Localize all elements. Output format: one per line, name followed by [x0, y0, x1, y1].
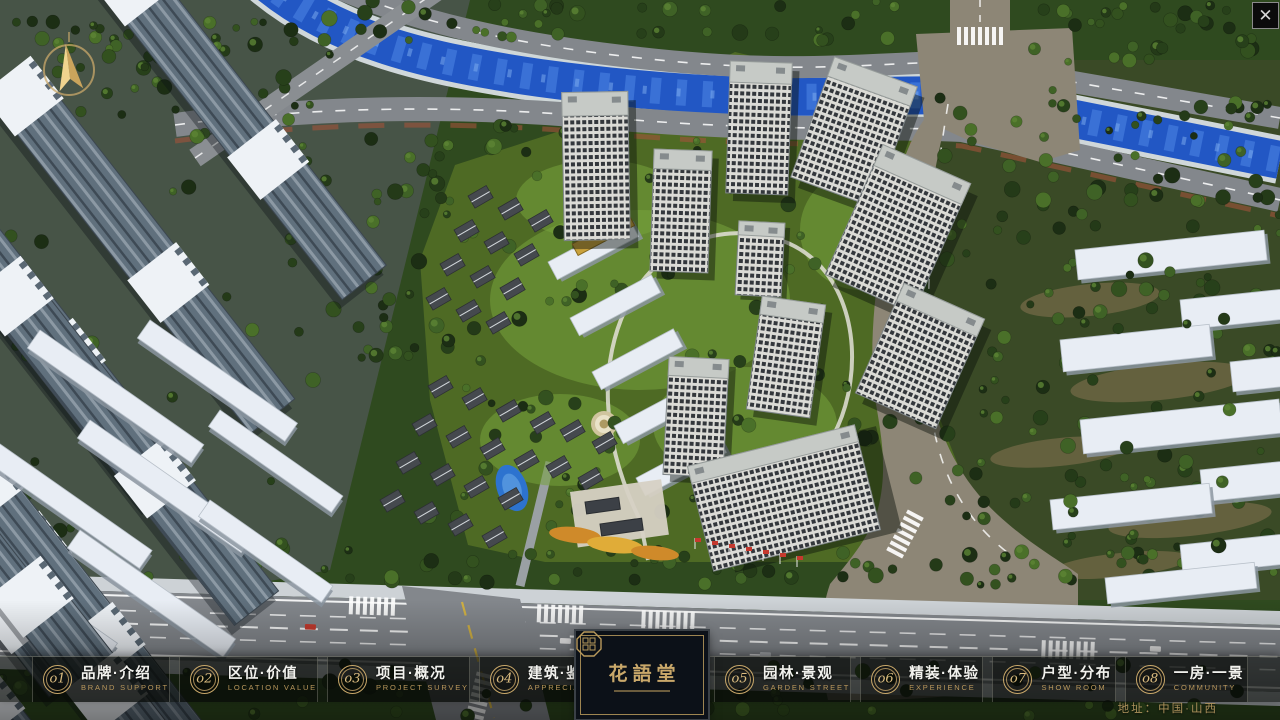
nav-item-project[interactable]: o3 项目·概况 PROJECT SURVEY: [327, 657, 470, 702]
nav-number-badge: o4: [490, 665, 519, 694]
nav-number-badge: o7: [1003, 665, 1032, 694]
nav-number-badge: o3: [338, 665, 367, 694]
nav-title: 一房·一景: [1174, 667, 1244, 682]
nav-group-right: o5 园林·景观 GARDEN STREET o6 精装·体验 EXPERIEN…: [714, 657, 1248, 702]
nav-subtitle: SHOW ROOM: [1041, 684, 1111, 692]
nav-item-location[interactable]: o2 区位·价值 LOCATION VALUE: [179, 657, 318, 702]
nav-subtitle: LOCATION VALUE: [228, 684, 317, 692]
nav-title: 精装·体验: [909, 667, 979, 682]
nav-title: 项目·概况: [376, 667, 469, 682]
presentation-window: ✕ o1 品牌·介绍 BRAND SUPPORT o2 区位·价值 LOCATI…: [0, 0, 1280, 720]
logo-title: 花語堂: [603, 659, 680, 686]
nav-number-badge: o6: [871, 665, 900, 694]
logo-rule: [614, 690, 670, 692]
nav-number-badge: o1: [43, 665, 72, 694]
nav-item-brand[interactable]: o1 品牌·介绍 BRAND SUPPORT: [32, 657, 170, 702]
aerial-render: [0, 0, 1280, 720]
seal-icon: [576, 631, 602, 657]
nav-subtitle: EXPERIENCE: [909, 684, 979, 692]
nav-number-badge: o2: [190, 665, 219, 694]
nav-subtitle: COMMUNITY: [1174, 684, 1244, 692]
nav-title: 户型·分布: [1041, 667, 1111, 682]
nav-subtitle: PROJECT SURVEY: [376, 684, 469, 692]
nav-group-left: o1 品牌·介绍 BRAND SUPPORT o2 区位·价值 LOCATION…: [32, 657, 566, 702]
nav-title: 园林·景观: [763, 667, 850, 682]
map-viewport[interactable]: [0, 0, 1280, 720]
compass-icon: [36, 32, 102, 102]
nav-item-floorplan[interactable]: o7 户型·分布 SHOW ROOM: [992, 657, 1115, 702]
nav-subtitle: GARDEN STREET: [763, 684, 850, 692]
project-logo[interactable]: 花語堂: [576, 631, 708, 719]
nav-item-interior[interactable]: o6 精装·体验 EXPERIENCE: [860, 657, 983, 702]
nav-item-views[interactable]: o8 一房·一景 COMMUNITY: [1125, 657, 1248, 702]
nav-item-garden[interactable]: o5 园林·景观 GARDEN STREET: [714, 657, 851, 702]
nav-title: 品牌·介绍: [81, 667, 169, 682]
nav-number-badge: o8: [1136, 665, 1165, 694]
nav-number-badge: o5: [725, 665, 754, 694]
address-label: 地址：中国·山西: [1118, 700, 1218, 716]
nav-title: 区位·价值: [228, 667, 317, 682]
nav-subtitle: BRAND SUPPORT: [81, 684, 169, 692]
close-button[interactable]: ✕: [1252, 2, 1279, 29]
